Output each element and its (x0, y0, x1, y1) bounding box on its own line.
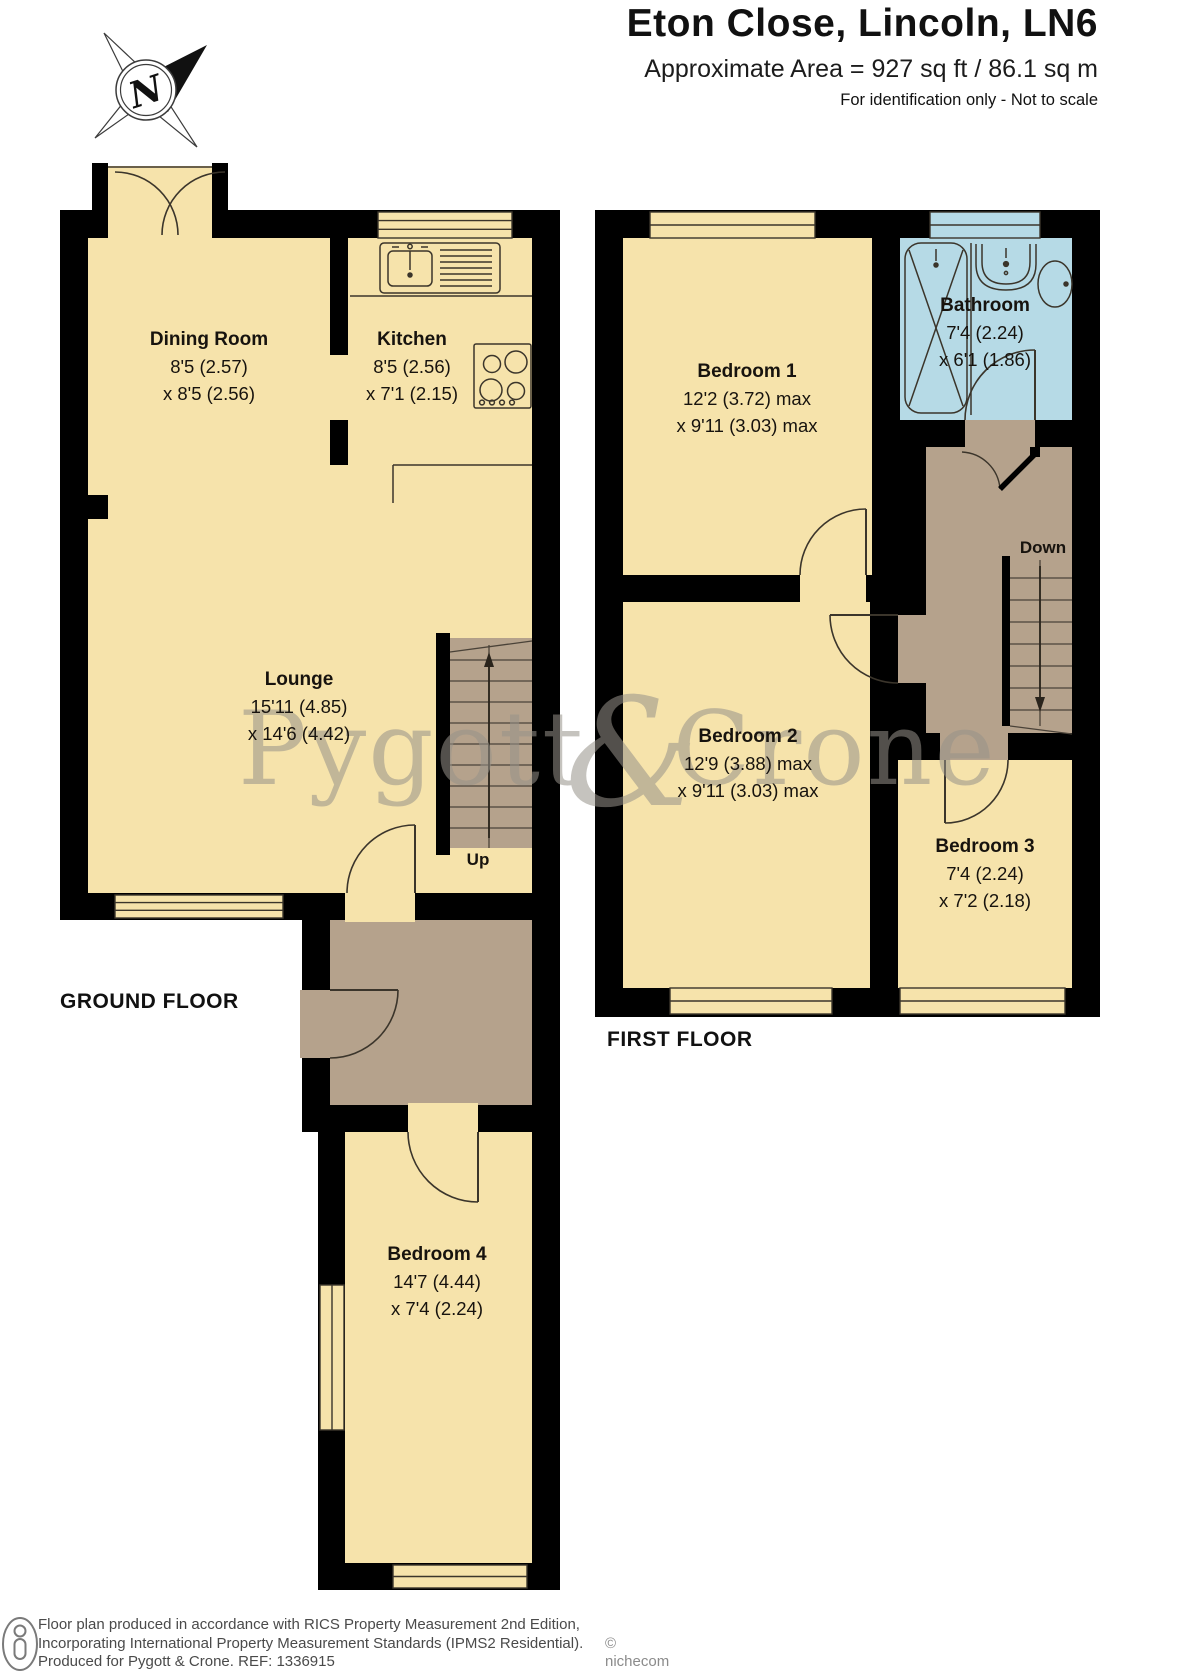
bathroom-door-opening (965, 420, 1035, 447)
floorplan-page: Eton Close, Lincoln, LN6 Approximate Are… (0, 0, 1192, 1672)
bedroom3-door-opening (940, 733, 1008, 760)
room-dim1: 7'4 (2.24) (935, 860, 1034, 887)
room-dim2: x 14'6 (4.42) (248, 720, 350, 747)
room-name: Bedroom 1 (677, 358, 818, 385)
compass-icon: N (95, 33, 207, 147)
lounge-hall-opening (345, 891, 415, 922)
room-dim1: 12'2 (3.72) max (677, 385, 818, 412)
room-label-bedroom1: Bedroom 1 12'2 (3.72) max x 9'11 (3.03) … (677, 358, 818, 439)
bedroom1-window (650, 212, 815, 238)
footer-line2: Incorporating International Property Mea… (38, 1635, 583, 1654)
footer-line3: Produced for Pygott & Crone. REF: 133691… (38, 1653, 583, 1672)
bedroom4-side-window (320, 1285, 344, 1430)
room-name: Bedroom 2 (678, 723, 819, 750)
person-icon (3, 1618, 37, 1670)
first-floor-label: FIRST FLOOR (607, 1028, 753, 1052)
bedroom4-door-opening (408, 1103, 478, 1134)
bedroom4-floor (345, 1132, 532, 1563)
hall-floor (330, 920, 532, 1105)
room-dim1: 8'5 (2.57) (150, 353, 268, 380)
room-dim1: 8'5 (2.56) (366, 353, 458, 380)
stairs-up-label: Up (467, 850, 490, 870)
room-label-kitchen: Kitchen 8'5 (2.56) x 7'1 (2.15) (366, 326, 458, 407)
room-dim1: 7'4 (2.24) (939, 319, 1031, 346)
footer-line1: Floor plan produced in accordance with R… (38, 1616, 583, 1635)
stairs-down-label: Down (1020, 538, 1066, 558)
ground-floor-plan (60, 163, 560, 1590)
room-name: Kitchen (366, 326, 458, 353)
room-name: Bedroom 4 (387, 1241, 486, 1268)
room-label-bedroom2: Bedroom 2 12'9 (3.88) max x 9'11 (3.03) … (678, 723, 819, 804)
ground-floor-label: GROUND FLOOR (60, 990, 239, 1014)
room-name: Bathroom (939, 292, 1031, 319)
room-label-bedroom4: Bedroom 4 14'7 (4.44) x 7'4 (2.24) (387, 1241, 486, 1322)
footer: Floor plan produced in accordance with R… (38, 1616, 583, 1672)
room-label-bedroom3: Bedroom 3 7'4 (2.24) x 7'2 (2.18) (935, 833, 1034, 914)
landing-floor (926, 447, 1072, 733)
bedroom1-door-opening (800, 575, 866, 602)
front-door-opening (300, 990, 332, 1058)
lounge-window (115, 895, 283, 918)
room-label-bathroom: Bathroom 7'4 (2.24) x 6'1 (1.86) (939, 292, 1031, 373)
room-label-dining: Dining Room 8'5 (2.57) x 8'5 (2.56) (150, 326, 268, 407)
room-dim1: 12'9 (3.88) max (678, 750, 819, 777)
kitchen-window (378, 212, 512, 238)
entrance-recess-floor (108, 166, 212, 238)
room-dim2: x 7'4 (2.24) (387, 1295, 486, 1322)
room-name: Bedroom 3 (935, 833, 1034, 860)
room-label-lounge: Lounge 15'11 (4.85) x 14'6 (4.42) (248, 666, 350, 747)
stairs-up (450, 638, 532, 848)
room-dim2: x 7'2 (2.18) (935, 887, 1034, 914)
bedroom3-window (900, 988, 1065, 1014)
room-dim2: x 9'11 (3.03) max (677, 412, 818, 439)
room-dim2: x 9'11 (3.03) max (678, 777, 819, 804)
bedroom2-window (670, 988, 832, 1014)
room-dim2: x 6'1 (1.86) (939, 346, 1031, 373)
room-name: Lounge (248, 666, 350, 693)
room-dim2: x 8'5 (2.56) (150, 380, 268, 407)
bathroom-window (930, 212, 1040, 238)
room-dim1: 15'11 (4.85) (248, 693, 350, 720)
bedroom2-door-opening (898, 615, 926, 683)
room-name: Dining Room (150, 326, 268, 353)
room-dim1: 14'7 (4.44) (387, 1268, 486, 1295)
bedroom4-bottom-window (393, 1565, 527, 1588)
footer-copyright: © nichecom 2025. (605, 1635, 669, 1672)
room-dim2: x 7'1 (2.15) (366, 380, 458, 407)
